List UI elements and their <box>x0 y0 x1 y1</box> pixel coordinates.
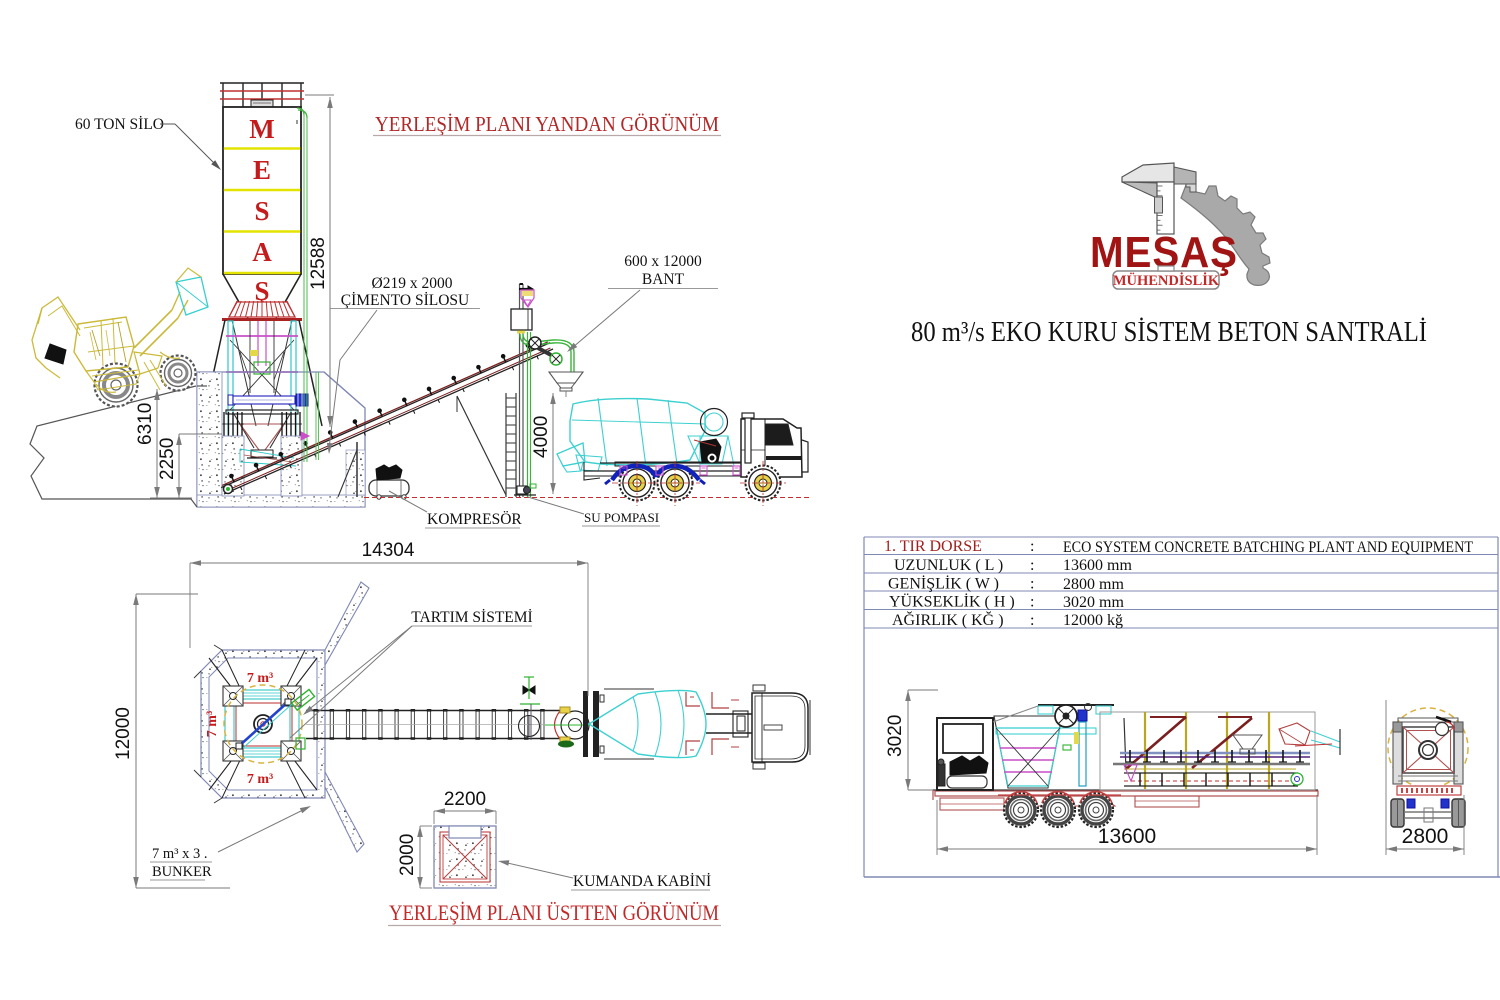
svg-text::: : <box>1030 557 1034 574</box>
svg-text:UZUNLUK ( L ): UZUNLUK ( L ) <box>894 557 1003 574</box>
svg-text:60 TON SİLO: 60 TON SİLO <box>75 116 164 133</box>
svg-text::: : <box>1030 576 1034 593</box>
svg-text:2000: 2000 <box>397 834 418 876</box>
svg-text:2800: 2800 <box>1402 825 1449 848</box>
svg-text:600 x 12000: 600 x 12000 <box>624 253 702 270</box>
svg-text:S: S <box>254 196 269 226</box>
svg-text:2250: 2250 <box>157 438 178 480</box>
svg-text::: : <box>1030 538 1034 555</box>
svg-text:1. TIR DORSE: 1. TIR DORSE <box>884 538 982 555</box>
svg-text:13600: 13600 <box>1098 825 1156 848</box>
svg-text:3020 mm: 3020 mm <box>1063 594 1124 611</box>
svg-text:12588: 12588 <box>308 237 329 290</box>
svg-text:ÇİMENTO SİLOSU: ÇİMENTO SİLOSU <box>341 292 469 309</box>
svg-text::: : <box>1030 594 1034 611</box>
svg-text:YERLEŞİM PLANI YANDAN GÖRÜNÜM: YERLEŞİM PLANI YANDAN GÖRÜNÜM <box>375 112 719 136</box>
svg-text:6310: 6310 <box>135 403 156 445</box>
svg-text:E: E <box>253 155 271 185</box>
svg-text:MÜHENDİSLİK: MÜHENDİSLİK <box>1113 272 1220 289</box>
svg-text:ECO SYSTEM CONCRETE BATCHING P: ECO SYSTEM CONCRETE BATCHING PLANT AND E… <box>1063 539 1473 556</box>
svg-text:KUMANDA KABİNİ: KUMANDA KABİNİ <box>573 873 711 890</box>
svg-text:AĞIRLIK ( KĞ ): AĞIRLIK ( KĞ ) <box>892 610 1004 629</box>
svg-text:7 m³: 7 m³ <box>205 711 220 737</box>
svg-text:12000 kğ: 12000 kğ <box>1063 612 1123 629</box>
svg-text:KOMPRESÖR: KOMPRESÖR <box>427 511 522 528</box>
svg-text:M: M <box>249 114 274 144</box>
svg-text::: : <box>1030 612 1034 629</box>
svg-text:13600 mm: 13600 mm <box>1063 557 1132 574</box>
svg-text:YÜKSEKLİK ( H ): YÜKSEKLİK ( H ) <box>889 593 1015 611</box>
svg-text:BANT: BANT <box>642 271 685 288</box>
svg-text:2800 mm: 2800 mm <box>1063 576 1124 593</box>
svg-text:12000: 12000 <box>113 707 134 760</box>
svg-text:2200: 2200 <box>444 789 486 810</box>
svg-text:BUNKER: BUNKER <box>152 864 212 880</box>
svg-text:YERLEŞİM PLANI ÜSTTEN GÖRÜNÜM: YERLEŞİM PLANI ÜSTTEN GÖRÜNÜM <box>389 900 719 925</box>
svg-text:80 m³/s EKO KURU SİSTEM BETON: 80 m³/s EKO KURU SİSTEM BETON SANTRALİ <box>911 316 1427 348</box>
svg-text:7 m³ x 3 .: 7 m³ x 3 . <box>152 846 208 862</box>
svg-text:SU POMPASI: SU POMPASI <box>584 510 659 525</box>
svg-text:3020: 3020 <box>885 715 906 757</box>
svg-text:4000: 4000 <box>531 416 552 458</box>
svg-text:A: A <box>252 237 272 267</box>
svg-text:Ø219 x 2000: Ø219 x 2000 <box>372 275 453 292</box>
svg-text:GENİŞLİK ( W ): GENİŞLİK ( W ) <box>888 575 999 593</box>
svg-text:7 m³: 7 m³ <box>247 772 273 787</box>
svg-text:14304: 14304 <box>362 540 415 561</box>
svg-text:7 m³: 7 m³ <box>247 671 273 686</box>
svg-text:TARTIM SİSTEMİ: TARTIM SİSTEMİ <box>411 609 532 626</box>
